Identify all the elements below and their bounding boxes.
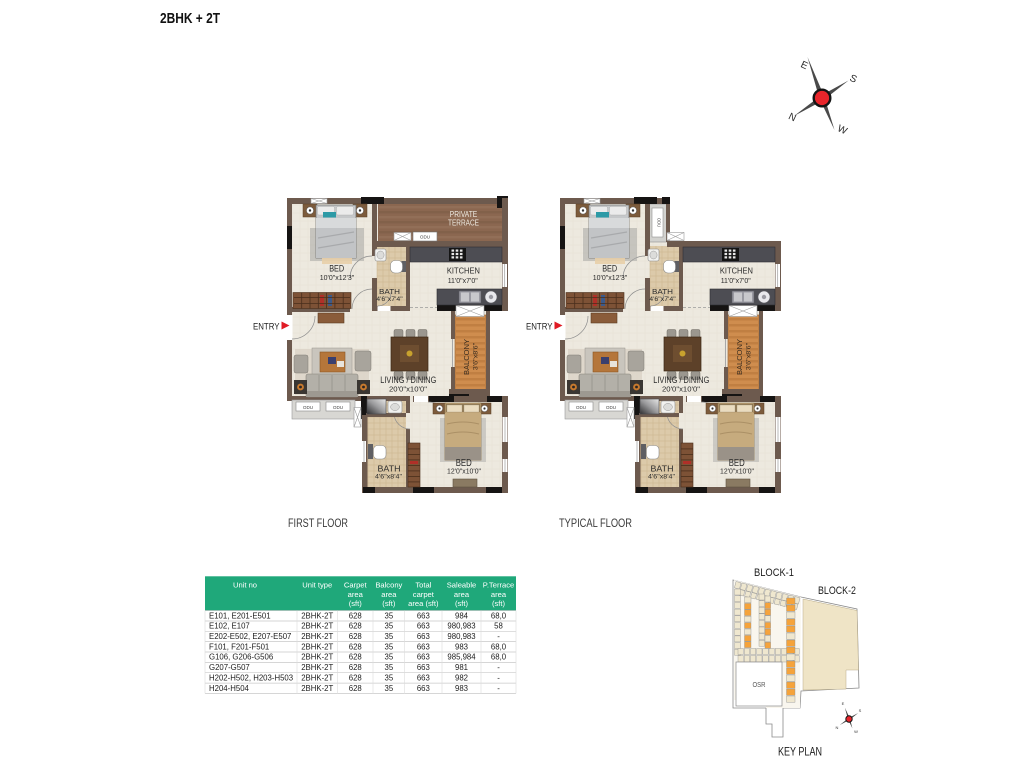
- svg-text:BED: BED: [329, 264, 344, 275]
- svg-text:628: 628: [349, 673, 362, 682]
- svg-text:20'0"x10'0": 20'0"x10'0": [389, 387, 428, 394]
- svg-text:BLOCK-2: BLOCK-2: [818, 585, 856, 597]
- svg-text:35: 35: [385, 684, 394, 693]
- svg-text:4'6"x8'4": 4'6"x8'4": [648, 474, 675, 481]
- svg-text:2BHK-2T: 2BHK-2T: [301, 673, 333, 682]
- svg-text:628: 628: [349, 622, 362, 631]
- svg-text:663: 663: [417, 673, 430, 682]
- svg-text:E: E: [799, 59, 810, 72]
- svg-text:983: 983: [455, 642, 468, 651]
- svg-text:982: 982: [455, 673, 468, 682]
- svg-text:(sft): (sft): [455, 599, 469, 608]
- svg-text:2BHK-2T: 2BHK-2T: [301, 663, 333, 672]
- svg-text:KITCHEN: KITCHEN: [447, 267, 480, 276]
- svg-text:981: 981: [455, 663, 468, 672]
- svg-text:(sft): (sft): [382, 599, 396, 608]
- svg-text:TERRACE: TERRACE: [448, 219, 479, 228]
- svg-text:2BHK-2T: 2BHK-2T: [301, 632, 333, 641]
- svg-text:BALCONY: BALCONY: [464, 339, 471, 375]
- svg-text:Unit no: Unit no: [233, 581, 257, 590]
- svg-text:984: 984: [455, 611, 469, 620]
- svg-text:area: area: [454, 590, 470, 599]
- svg-text:2BHK + 2T: 2BHK + 2T: [160, 10, 220, 27]
- svg-text:(sft): (sft): [492, 599, 506, 608]
- svg-text:carpet: carpet: [413, 590, 435, 599]
- svg-text:P.Terrace: P.Terrace: [483, 581, 515, 590]
- svg-text:BATH: BATH: [652, 287, 673, 296]
- svg-text:10'0"x12'3": 10'0"x12'3": [320, 275, 355, 282]
- svg-text:S: S: [848, 73, 859, 86]
- svg-text:(sft): (sft): [349, 599, 363, 608]
- svg-text:2BHK-2T: 2BHK-2T: [301, 653, 333, 662]
- svg-text:ODU: ODU: [420, 235, 430, 240]
- svg-text:G207-G507: G207-G507: [209, 663, 250, 672]
- svg-text:628: 628: [349, 611, 362, 620]
- svg-text:11'0"x7'0": 11'0"x7'0": [448, 278, 479, 285]
- svg-text:628: 628: [349, 684, 362, 693]
- svg-text:H202-H502, H203-H503: H202-H502, H203-H503: [209, 673, 293, 682]
- svg-text:BED: BED: [602, 264, 617, 275]
- svg-text:663: 663: [417, 632, 430, 641]
- svg-text:BLOCK-1: BLOCK-1: [754, 567, 794, 579]
- svg-text:E202-E502, E207-E507: E202-E502, E207-E507: [209, 632, 291, 641]
- svg-text:ENTRY: ENTRY: [526, 322, 553, 332]
- svg-text:-: -: [497, 663, 500, 672]
- svg-text:BED: BED: [729, 458, 745, 469]
- svg-text:TYPICAL FLOOR: TYPICAL FLOOR: [559, 516, 632, 530]
- svg-text:G106, G206-G506: G106, G206-G506: [209, 653, 273, 662]
- svg-text:628: 628: [349, 642, 362, 651]
- svg-text:20'0"x10'0": 20'0"x10'0": [662, 387, 701, 394]
- svg-text:KITCHEN: KITCHEN: [720, 267, 753, 276]
- svg-text:35: 35: [385, 611, 394, 620]
- svg-text:N: N: [836, 725, 839, 730]
- svg-text:-: -: [497, 673, 500, 682]
- svg-text:980,983: 980,983: [447, 632, 475, 641]
- svg-text:2BHK-2T: 2BHK-2T: [301, 642, 333, 651]
- svg-text:663: 663: [417, 663, 430, 672]
- svg-text:BATH: BATH: [651, 465, 674, 474]
- svg-text:628: 628: [349, 653, 362, 662]
- svg-text:S: S: [859, 708, 862, 713]
- svg-text:ENTRY: ENTRY: [253, 322, 280, 332]
- svg-text:area (sft): area (sft): [408, 599, 439, 608]
- svg-text:11'0"x7'0": 11'0"x7'0": [721, 278, 752, 285]
- svg-text:35: 35: [385, 673, 394, 682]
- svg-text:LIVING / DINING: LIVING / DINING: [380, 375, 436, 385]
- svg-text:12'0"x10'0": 12'0"x10'0": [720, 469, 754, 476]
- svg-text:OSR: OSR: [753, 682, 766, 689]
- svg-text:663: 663: [417, 622, 430, 631]
- svg-text:ODU: ODU: [303, 405, 313, 410]
- svg-text:ODU: ODU: [657, 218, 662, 227]
- svg-text:663: 663: [417, 611, 430, 620]
- svg-text:Total: Total: [415, 581, 431, 590]
- svg-text:BATH: BATH: [379, 287, 400, 296]
- svg-text:H204-H504: H204-H504: [209, 684, 250, 693]
- svg-text:E101, E201-E501: E101, E201-E501: [209, 611, 271, 620]
- svg-text:ODU: ODU: [576, 405, 586, 410]
- svg-text:35: 35: [385, 663, 394, 672]
- svg-text:2BHK-2T: 2BHK-2T: [301, 611, 333, 620]
- svg-text:LIVING / DINING: LIVING / DINING: [653, 375, 709, 385]
- svg-text:N: N: [786, 111, 797, 124]
- svg-text:68,0: 68,0: [491, 642, 507, 651]
- svg-text:35: 35: [385, 642, 394, 651]
- svg-text:35: 35: [385, 632, 394, 641]
- svg-text:FIRST FLOOR: FIRST FLOOR: [288, 516, 348, 530]
- svg-text:E102, E107: E102, E107: [209, 622, 250, 631]
- svg-text:E: E: [842, 701, 845, 706]
- svg-text:663: 663: [417, 642, 430, 651]
- svg-text:Saleable: Saleable: [447, 581, 477, 590]
- svg-text:68,0: 68,0: [491, 611, 507, 620]
- svg-text:12'0"x10'0": 12'0"x10'0": [447, 469, 481, 476]
- svg-text:Unit type: Unit type: [302, 581, 332, 590]
- svg-text:68,0: 68,0: [491, 653, 507, 662]
- svg-text:985,984: 985,984: [447, 653, 476, 662]
- svg-text:35: 35: [385, 622, 394, 631]
- svg-text:663: 663: [417, 653, 430, 662]
- svg-text:628: 628: [349, 632, 362, 641]
- svg-text:BATH: BATH: [378, 465, 401, 474]
- svg-text:2BHK-2T: 2BHK-2T: [301, 684, 333, 693]
- svg-text:BED: BED: [456, 458, 472, 469]
- svg-text:Carpet: Carpet: [344, 581, 368, 590]
- svg-text:4'6"x7'4": 4'6"x7'4": [649, 297, 676, 303]
- svg-text:980,983: 980,983: [447, 622, 475, 631]
- svg-text:628: 628: [349, 663, 362, 672]
- svg-text:W: W: [835, 123, 849, 137]
- svg-text:area: area: [381, 590, 397, 599]
- svg-text:ODU: ODU: [333, 405, 343, 410]
- svg-text:663: 663: [417, 684, 430, 693]
- svg-text:4'6"x8'4": 4'6"x8'4": [375, 474, 402, 481]
- svg-text:area: area: [348, 590, 364, 599]
- svg-text:BALCONY: BALCONY: [737, 339, 744, 375]
- svg-text:KEY PLAN: KEY PLAN: [778, 745, 822, 759]
- svg-text:10'0"x12'3": 10'0"x12'3": [593, 275, 628, 282]
- svg-text:2BHK-2T: 2BHK-2T: [301, 622, 333, 631]
- svg-text:4'6"x7'4": 4'6"x7'4": [376, 297, 403, 303]
- svg-text:3'6"x8'6": 3'6"x8'6": [474, 343, 480, 371]
- svg-text:-: -: [497, 632, 500, 641]
- svg-text:35: 35: [385, 653, 394, 662]
- svg-text:-: -: [497, 684, 500, 693]
- svg-text:F101, F201-F501: F101, F201-F501: [209, 642, 269, 651]
- svg-text:983: 983: [455, 684, 468, 693]
- svg-text:Balcony: Balcony: [375, 581, 402, 590]
- svg-text:ODU: ODU: [606, 405, 616, 410]
- svg-text:58: 58: [494, 622, 503, 631]
- svg-text:area: area: [491, 590, 507, 599]
- svg-text:W: W: [854, 729, 858, 734]
- svg-text:3'6"x8'6": 3'6"x8'6": [747, 343, 753, 371]
